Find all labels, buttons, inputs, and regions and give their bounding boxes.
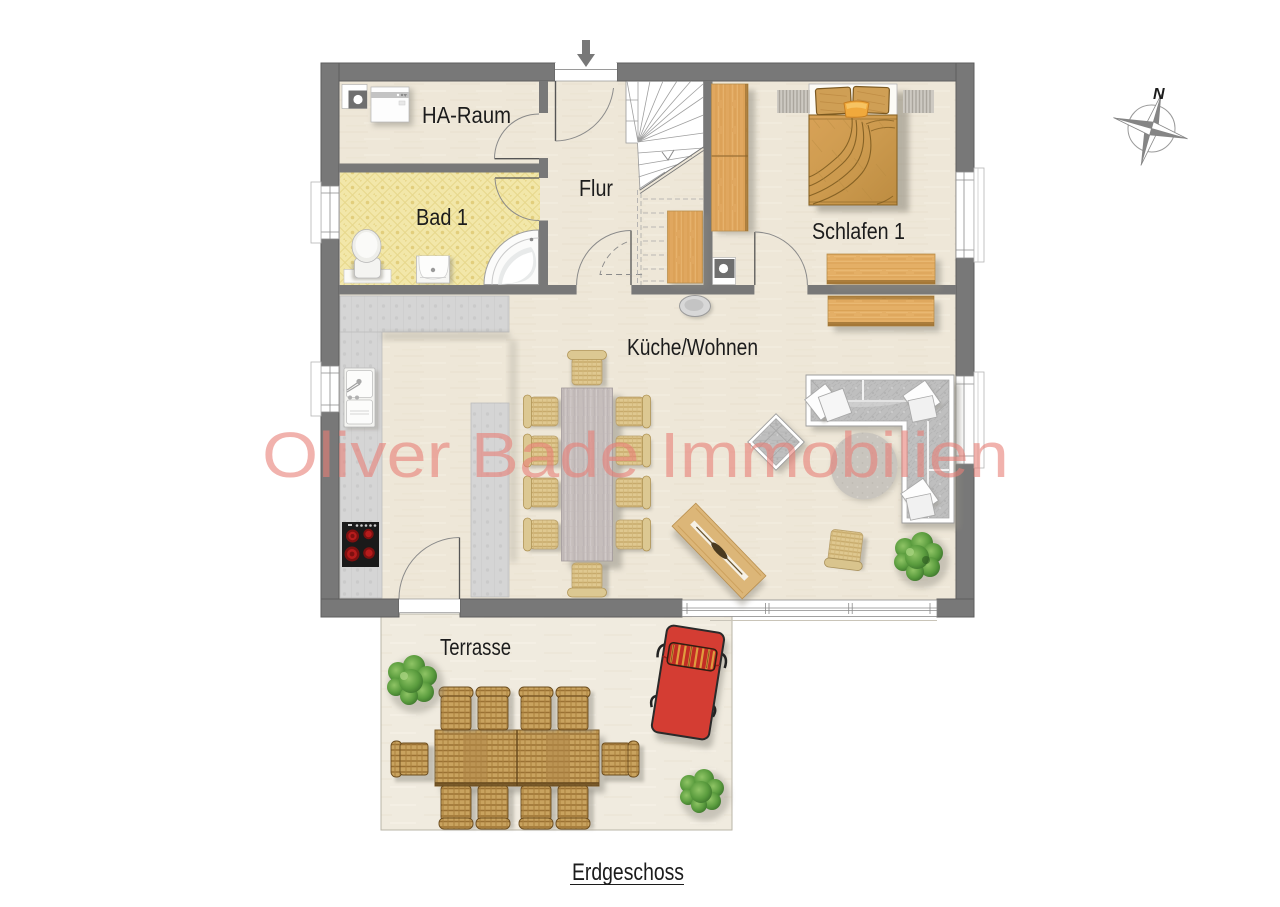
svg-text:N: N: [1153, 86, 1165, 103]
svg-text:Schlafen 1: Schlafen 1: [812, 218, 905, 244]
svg-text:Erdgeschoss: Erdgeschoss: [572, 859, 684, 886]
svg-text:HA-Raum: HA-Raum: [422, 102, 511, 128]
svg-text:Flur: Flur: [579, 175, 613, 201]
svg-text:Küche/Wohnen: Küche/Wohnen: [627, 334, 758, 360]
svg-text:Terrasse: Terrasse: [440, 634, 511, 660]
svg-text:Oliver Bade Immobilien: Oliver Bade Immobilien: [262, 419, 1009, 491]
svg-text:Bad 1: Bad 1: [416, 204, 468, 230]
